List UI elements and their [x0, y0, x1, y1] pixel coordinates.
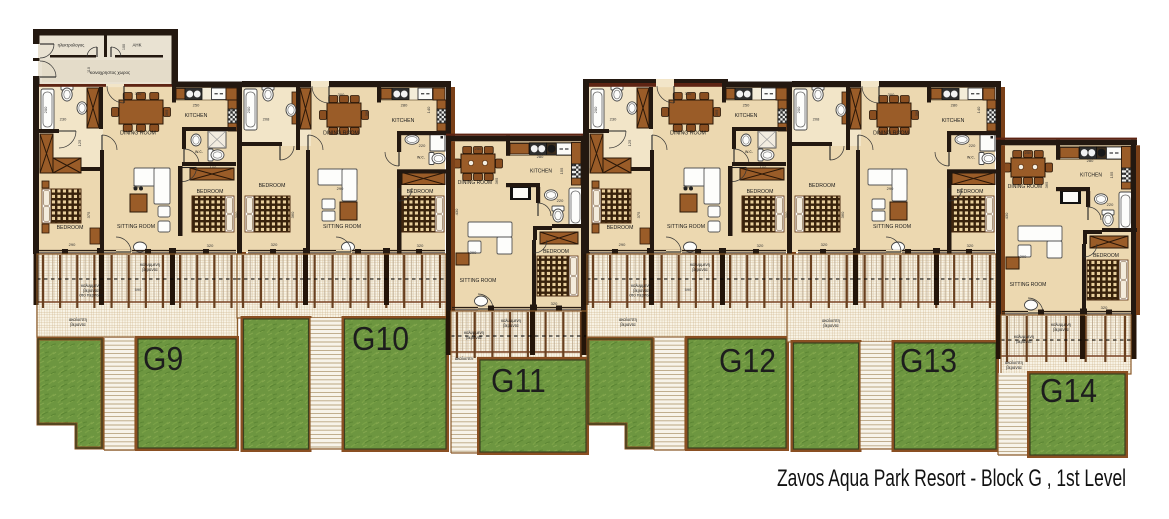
- svg-text:BEDROOM: BEDROOM: [747, 189, 774, 195]
- svg-text:125: 125: [627, 139, 632, 146]
- svg-text:BEDROOM: BEDROOM: [543, 249, 569, 255]
- svg-text:220: 220: [1107, 202, 1114, 207]
- svg-text:BEDROOM: BEDROOM: [809, 183, 836, 189]
- svg-text:DINING ROOM: DINING ROOM: [458, 180, 492, 186]
- svg-text:220: 220: [969, 143, 976, 148]
- svg-text:280: 280: [1087, 158, 1094, 163]
- svg-text:βεραντα: βεραντα: [503, 323, 519, 328]
- svg-text:KITCHEN: KITCHEN: [392, 118, 415, 124]
- svg-text:βεραντα: βεραντα: [466, 335, 482, 340]
- svg-text:w.c.: w.c.: [195, 149, 203, 154]
- svg-text:βεραντα: βεραντα: [823, 323, 839, 328]
- svg-text:SITTING ROOM: SITTING ROOM: [460, 278, 497, 284]
- svg-text:280: 280: [401, 103, 408, 108]
- svg-text:290: 290: [337, 186, 344, 191]
- svg-text:BEDROOM: BEDROOM: [1093, 253, 1119, 259]
- svg-text:BEDROOM: BEDROOM: [57, 225, 84, 231]
- svg-text:208: 208: [813, 117, 820, 122]
- svg-text:ηλεκτρολογος: ηλεκτρολογος: [58, 43, 85, 48]
- svg-text:250: 250: [193, 103, 200, 108]
- svg-text:330: 330: [685, 91, 692, 96]
- svg-text:320: 320: [757, 243, 764, 248]
- svg-text:SITTING ROOM: SITTING ROOM: [1010, 282, 1047, 288]
- svg-text:DINING ROOM: DINING ROOM: [1008, 184, 1042, 190]
- svg-text:230: 230: [610, 117, 617, 122]
- svg-text:w.c.: w.c.: [967, 155, 975, 160]
- svg-text:290: 290: [470, 250, 477, 255]
- svg-text:100: 100: [122, 44, 126, 50]
- svg-text:330: 330: [133, 184, 140, 189]
- svg-text:365: 365: [494, 177, 499, 184]
- svg-text:365: 365: [364, 109, 369, 116]
- svg-text:κοινοχρηστος χωρος: κοινοχρηστος χωρος: [90, 70, 130, 75]
- svg-text:320: 320: [207, 243, 214, 248]
- svg-text:220: 220: [557, 198, 564, 203]
- svg-text:280: 280: [537, 154, 544, 159]
- svg-text:320: 320: [1101, 305, 1108, 310]
- svg-text:G14: G14: [1040, 372, 1097, 410]
- svg-text:BEDROOM: BEDROOM: [607, 225, 634, 231]
- svg-text:290: 290: [619, 242, 626, 247]
- svg-text:140: 140: [976, 106, 981, 113]
- svg-text:G11: G11: [491, 362, 546, 400]
- svg-text:DINING ROOM: DINING ROOM: [323, 131, 359, 137]
- svg-text:Zavos Aqua Park Resort - Block: Zavos Aqua Park Resort - Block G , 1st L…: [777, 465, 1126, 491]
- svg-text:KITCHEN: KITCHEN: [185, 113, 208, 119]
- svg-text:KITCHEN: KITCHEN: [1080, 173, 1102, 179]
- svg-text:βεραντα: βεραντα: [1053, 327, 1069, 332]
- svg-text:300: 300: [888, 92, 895, 97]
- svg-text:365: 365: [164, 109, 169, 116]
- svg-text:200: 200: [796, 106, 801, 113]
- svg-text:155: 155: [559, 167, 564, 174]
- svg-text:155: 155: [1109, 171, 1114, 178]
- svg-text:230: 230: [60, 117, 67, 122]
- svg-text:140: 140: [426, 106, 431, 113]
- svg-text:DINING ROOM: DINING ROOM: [873, 131, 909, 137]
- svg-text:330: 330: [683, 184, 690, 189]
- svg-text:KITCHEN: KITCHEN: [735, 113, 758, 119]
- svg-text:290: 290: [1020, 254, 1027, 259]
- svg-text:KITCHEN: KITCHEN: [530, 169, 552, 175]
- svg-text:G9: G9: [143, 340, 183, 378]
- svg-text:w.c.: w.c.: [745, 149, 753, 154]
- svg-text:320: 320: [417, 243, 424, 248]
- svg-text:BEDROOM: BEDROOM: [197, 189, 224, 195]
- svg-text:365: 365: [714, 109, 719, 116]
- svg-text:320: 320: [271, 242, 278, 247]
- svg-text:βεραντα: βεραντα: [1006, 365, 1022, 370]
- svg-text:BEDROOM: BEDROOM: [259, 183, 286, 189]
- svg-text:330: 330: [135, 91, 142, 96]
- svg-text:360: 360: [840, 211, 845, 218]
- svg-text:KITCHEN: KITCHEN: [942, 118, 965, 124]
- svg-text:375: 375: [636, 211, 641, 218]
- svg-text:280: 280: [951, 103, 958, 108]
- svg-text:320: 320: [821, 242, 828, 247]
- svg-text:G12: G12: [719, 342, 776, 380]
- svg-text:200: 200: [246, 106, 251, 113]
- svg-text:208: 208: [263, 117, 270, 122]
- svg-text:βεραντα: βεραντα: [1016, 339, 1032, 344]
- svg-text:SITTING ROOM: SITTING ROOM: [873, 224, 911, 230]
- svg-text:140: 140: [779, 107, 784, 114]
- svg-text:320: 320: [967, 243, 974, 248]
- svg-text:250: 250: [1025, 150, 1032, 155]
- svg-text:320: 320: [551, 301, 558, 306]
- svg-text:w.c.: w.c.: [417, 155, 425, 160]
- svg-text:300: 300: [338, 92, 345, 97]
- svg-text:365: 365: [1044, 181, 1049, 188]
- svg-text:DINING ROOM: DINING ROOM: [670, 131, 706, 137]
- svg-text:200: 200: [593, 106, 598, 113]
- svg-text:290: 290: [887, 186, 894, 191]
- svg-text:G13: G13: [900, 342, 957, 380]
- svg-text:365: 365: [914, 109, 919, 116]
- svg-text:220: 220: [419, 143, 426, 148]
- svg-text:G10: G10: [352, 320, 409, 358]
- svg-text:140: 140: [229, 107, 234, 114]
- svg-text:360: 360: [290, 211, 295, 218]
- svg-text:250: 250: [743, 103, 750, 108]
- svg-text:250: 250: [475, 146, 482, 151]
- svg-text:DINING ROOM: DINING ROOM: [120, 131, 156, 137]
- svg-text:375: 375: [86, 211, 91, 218]
- svg-text:SITTING ROOM: SITTING ROOM: [667, 224, 705, 230]
- svg-text:200: 200: [43, 106, 48, 113]
- svg-text:SITTING ROOM: SITTING ROOM: [323, 224, 361, 230]
- svg-text:AHK: AHK: [132, 43, 141, 48]
- svg-text:125: 125: [77, 139, 82, 146]
- svg-text:110: 110: [87, 67, 91, 73]
- svg-text:SITTING ROOM: SITTING ROOM: [117, 224, 155, 230]
- svg-text:290: 290: [69, 242, 76, 247]
